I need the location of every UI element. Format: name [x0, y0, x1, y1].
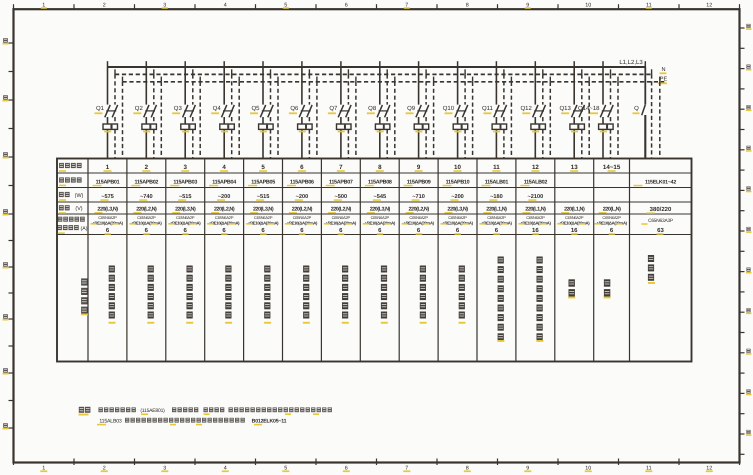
- svg-text:115APB09: 115APB09: [407, 179, 431, 185]
- svg-text:220(L2,N): 220(L2,N): [214, 207, 235, 213]
- svg-text:(115AE801): (115AE801): [140, 408, 165, 414]
- svg-text:6: 6: [345, 3, 348, 9]
- svg-text:16: 16: [571, 227, 578, 234]
- svg-text:+RE10(ΔA(30mA): +RE10(ΔA(30mA): [481, 220, 512, 225]
- svg-text:10: 10: [585, 3, 591, 9]
- svg-text:+RE10(ΔA(30mA): +RE10(ΔA(30mA): [365, 220, 396, 225]
- svg-text:Q11: Q11: [482, 105, 494, 112]
- svg-text:+RE10(ΔA(30mA): +RE10(ΔA(30mA): [209, 220, 240, 225]
- svg-text:13: 13: [571, 164, 578, 171]
- svg-text:115ALB01: 115ALB01: [485, 179, 509, 185]
- svg-text:16: 16: [532, 227, 539, 234]
- svg-text:C65N6A2P: C65N6A2P: [448, 215, 467, 220]
- svg-text:~200: ~200: [296, 194, 309, 200]
- svg-text:C65N63A3P: C65N63A3P: [648, 218, 673, 224]
- svg-text:L1,L2,L3: L1,L2,L3: [619, 59, 643, 66]
- svg-text:115ALB02: 115ALB02: [524, 179, 548, 185]
- svg-text:220(L2,N): 220(L2,N): [136, 207, 157, 213]
- svg-text:~200: ~200: [451, 194, 464, 200]
- svg-text:~515: ~515: [179, 194, 192, 200]
- svg-text:Q6: Q6: [290, 105, 299, 112]
- svg-text:Q4: Q4: [213, 105, 222, 112]
- svg-text:~545: ~545: [373, 194, 386, 200]
- svg-text:220(L3,N): 220(L3,N): [253, 207, 274, 213]
- svg-text:C65N6A2P: C65N6A2P: [332, 215, 351, 220]
- svg-text:220(L3,N): 220(L3,N): [97, 207, 118, 213]
- svg-text:220(L3,N): 220(L3,N): [370, 207, 391, 213]
- svg-text:C65N6A2P: C65N6A2P: [602, 215, 621, 220]
- svg-text:220(L2,N): 220(L2,N): [408, 207, 429, 213]
- svg-text:+RE10(ΔA(30mA): +RE10(ΔA(30mA): [442, 220, 473, 225]
- svg-text:4: 4: [222, 164, 226, 171]
- svg-text:12: 12: [706, 3, 712, 9]
- svg-text:10: 10: [454, 164, 461, 171]
- svg-text:C65N6A2P: C65N6A2P: [293, 215, 312, 220]
- svg-text:5: 5: [261, 164, 265, 171]
- svg-text:220(L1,N): 220(L1,N): [486, 207, 507, 213]
- svg-text:220(L3,N): 220(L3,N): [447, 207, 468, 213]
- svg-text:14~15: 14~15: [603, 164, 621, 171]
- svg-text:+RE10(ΔA(30mA): +RE10(ΔA(30mA): [559, 220, 590, 225]
- svg-text:220(L3,N): 220(L3,N): [175, 207, 196, 213]
- svg-text:2: 2: [145, 164, 149, 171]
- svg-text:C65N6A2P: C65N6A2P: [526, 215, 545, 220]
- svg-text:+RE10(ΔA(30mA): +RE10(ΔA(30mA): [520, 220, 551, 225]
- svg-text:115APB01: 115APB01: [96, 179, 120, 185]
- svg-text:+RE10(ΔA(30mA): +RE10(ΔA(30mA): [248, 220, 279, 225]
- svg-text:B012ELK05~11: B012ELK05~11: [252, 418, 287, 424]
- svg-text:115ELK01~42: 115ELK01~42: [645, 179, 676, 185]
- svg-text:~740: ~740: [140, 194, 153, 200]
- svg-text:Q9: Q9: [407, 105, 416, 112]
- svg-text:(A): (A): [81, 226, 88, 232]
- svg-text:+RE10(ΔA(30mA): +RE10(ΔA(30mA): [403, 220, 434, 225]
- svg-text:8: 8: [466, 3, 469, 9]
- svg-text:220(L2,N): 220(L2,N): [292, 207, 313, 213]
- svg-text:220(L,N): 220(L,N): [603, 207, 621, 213]
- svg-text:220(L2,N): 220(L2,N): [331, 207, 352, 213]
- svg-text:Q: Q: [634, 105, 639, 112]
- svg-text:PE: PE: [660, 77, 668, 83]
- svg-text:C65N6A2P: C65N6A2P: [487, 215, 506, 220]
- svg-text:6: 6: [300, 164, 304, 171]
- svg-text:+RE10(ΔA(30mA): +RE10(ΔA(30mA): [326, 220, 357, 225]
- svg-text:115ALB03: 115ALB03: [99, 418, 122, 424]
- svg-text:11: 11: [493, 164, 500, 171]
- svg-text:+RE10(ΔA(30mA): +RE10(ΔA(30mA): [92, 220, 123, 225]
- svg-text:~200: ~200: [218, 194, 231, 200]
- svg-text:380/220: 380/220: [650, 206, 672, 213]
- svg-text:+RE10(ΔA(30mA): +RE10(ΔA(30mA): [170, 220, 201, 225]
- svg-text:Q3: Q3: [174, 105, 183, 112]
- svg-text:~2100: ~2100: [528, 194, 544, 200]
- svg-text:115APB06: 115APB06: [290, 179, 314, 185]
- svg-text:~500: ~500: [334, 194, 347, 200]
- svg-text:C65N6A2P: C65N6A2P: [254, 215, 273, 220]
- svg-text:Q12: Q12: [520, 105, 532, 112]
- svg-text:~575: ~575: [101, 194, 114, 200]
- svg-text:C65N6A2P: C65N6A2P: [565, 215, 584, 220]
- svg-text:7: 7: [339, 164, 343, 171]
- svg-text:115APB10: 115APB10: [446, 179, 470, 185]
- svg-text:~180: ~180: [490, 194, 503, 200]
- svg-text:2: 2: [103, 3, 106, 9]
- svg-text:N: N: [661, 67, 665, 73]
- svg-text:C65N6A2P: C65N6A2P: [371, 215, 390, 220]
- svg-text:Q10: Q10: [443, 105, 455, 112]
- svg-text:C65N6A2P: C65N6A2P: [98, 215, 117, 220]
- svg-text:C65N6A2P: C65N6A2P: [215, 215, 234, 220]
- svg-text:220(L1,N): 220(L1,N): [525, 207, 546, 213]
- svg-text:Q1: Q1: [96, 105, 105, 112]
- svg-text:8: 8: [378, 164, 382, 171]
- svg-text:63: 63: [657, 227, 664, 234]
- svg-text:115APB03: 115APB03: [173, 179, 197, 185]
- svg-text:(W): (W): [75, 193, 84, 199]
- svg-text:3: 3: [183, 164, 187, 171]
- svg-text:115APB07: 115APB07: [329, 179, 353, 185]
- svg-text:~710: ~710: [412, 194, 425, 200]
- svg-text:Q7: Q7: [329, 105, 338, 112]
- svg-text:Q13: Q13: [559, 105, 571, 112]
- svg-text:115APB02: 115APB02: [134, 179, 158, 185]
- svg-text:C65N6A2P: C65N6A2P: [176, 215, 195, 220]
- svg-text:Q5: Q5: [251, 105, 260, 112]
- svg-text:220(L1,N): 220(L1,N): [564, 207, 585, 213]
- svg-text:(V): (V): [75, 206, 82, 212]
- svg-text:115APB04: 115APB04: [212, 179, 236, 185]
- svg-text:Q2: Q2: [135, 105, 144, 112]
- svg-text:Q8: Q8: [368, 105, 377, 112]
- svg-text:115APB08: 115APB08: [368, 179, 392, 185]
- svg-text:115APB05: 115APB05: [251, 179, 275, 185]
- svg-text:~515: ~515: [257, 194, 270, 200]
- svg-text:+RE10(ΔA(30mA): +RE10(ΔA(30mA): [596, 220, 627, 225]
- svg-text:1: 1: [106, 164, 110, 171]
- svg-text:C65N6A2P: C65N6A2P: [137, 215, 156, 220]
- svg-text:+RE10(ΔA(30mA): +RE10(ΔA(30mA): [131, 220, 162, 225]
- svg-text:9: 9: [417, 164, 421, 171]
- svg-text:C65N6A2P: C65N6A2P: [409, 215, 428, 220]
- svg-text:4: 4: [224, 3, 227, 9]
- svg-text:Q14~18: Q14~18: [578, 105, 600, 112]
- svg-text:+RE10(ΔA(30mA): +RE10(ΔA(30mA): [287, 220, 318, 225]
- svg-text:12: 12: [532, 164, 539, 171]
